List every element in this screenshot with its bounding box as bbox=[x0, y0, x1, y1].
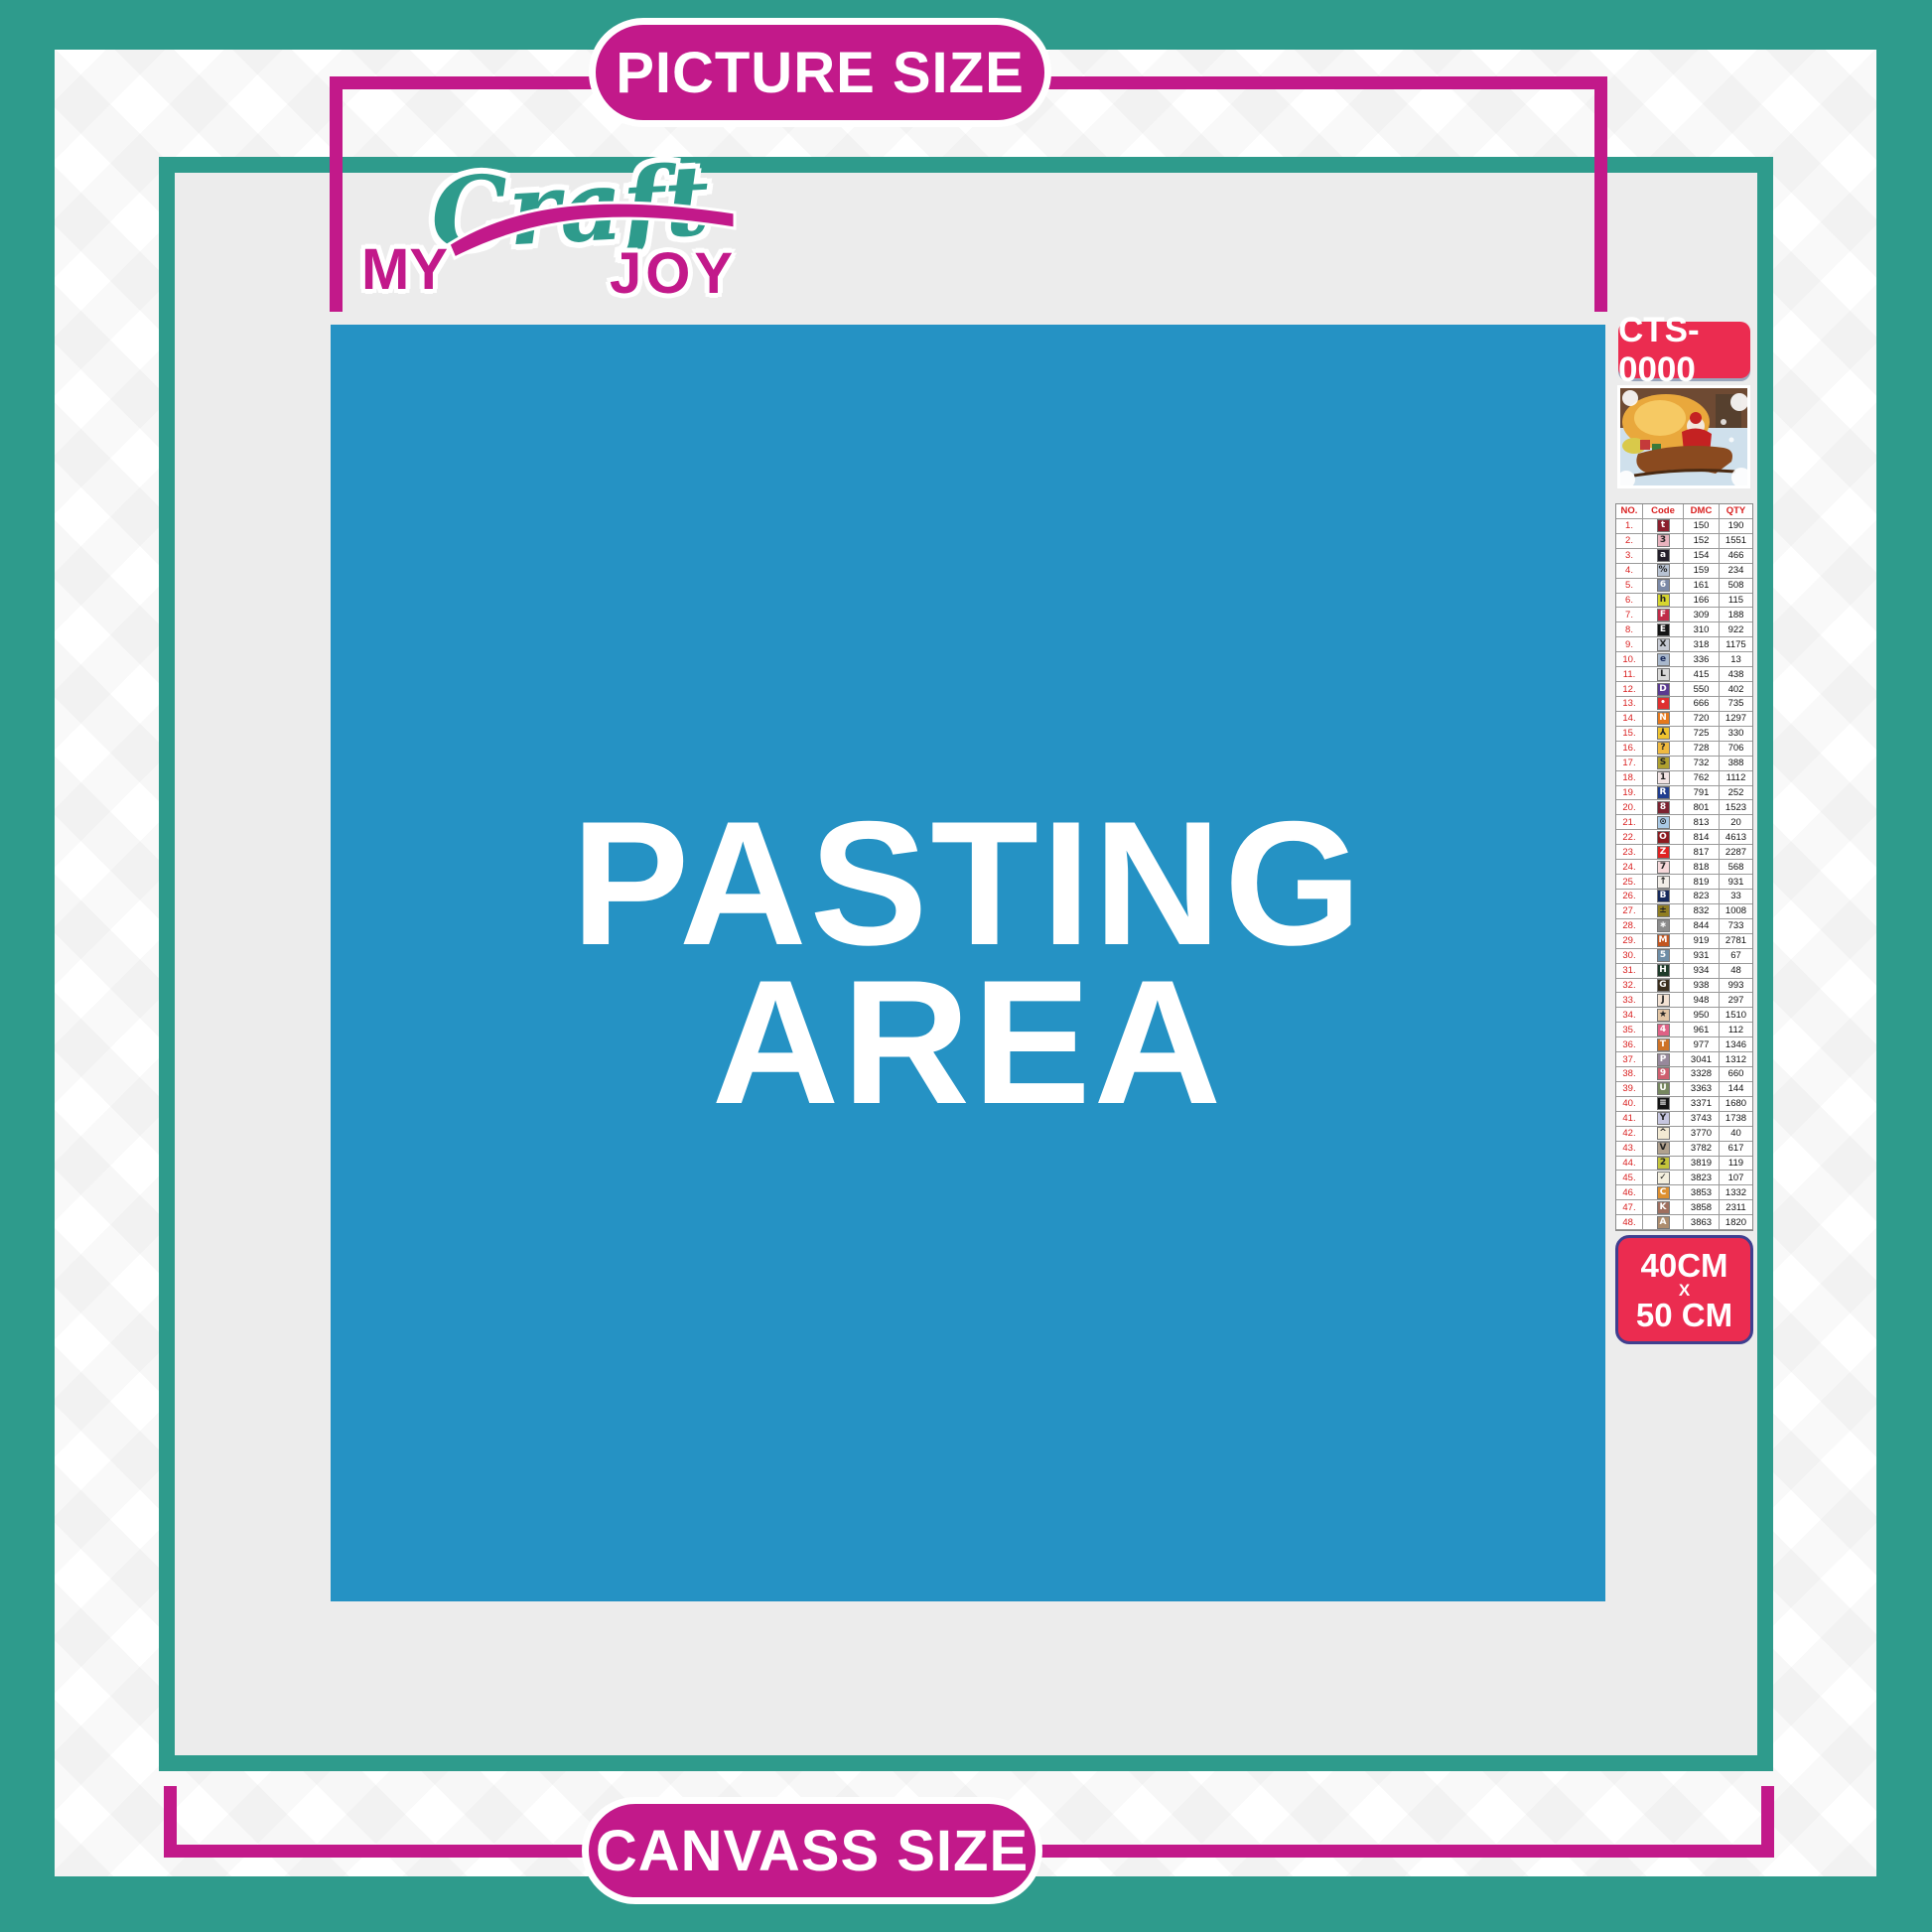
chart-cell-code: 9 bbox=[1643, 1067, 1684, 1082]
chart-cell-no: 33. bbox=[1616, 993, 1643, 1008]
chart-row: 13.•666735 bbox=[1616, 697, 1752, 712]
chart-cell-code: Y bbox=[1643, 1112, 1684, 1127]
chart-cell-qty: 48 bbox=[1720, 964, 1752, 979]
chart-row: 35.4961112 bbox=[1616, 1023, 1752, 1037]
color-symbol-chip: R bbox=[1657, 786, 1670, 799]
chart-row: 42.^377040 bbox=[1616, 1127, 1752, 1142]
chart-cell-qty: 1680 bbox=[1720, 1097, 1752, 1112]
chart-cell-no: 29. bbox=[1616, 934, 1643, 949]
chart-cell-qty: 20 bbox=[1720, 815, 1752, 830]
chart-cell-qty: 1312 bbox=[1720, 1052, 1752, 1067]
chart-cell-dmc: 801 bbox=[1684, 800, 1720, 815]
chart-cell-dmc: 3743 bbox=[1684, 1112, 1720, 1127]
chart-cell-dmc: 817 bbox=[1684, 845, 1720, 860]
chart-row: 14.N7201297 bbox=[1616, 712, 1752, 727]
chart-cell-code: H bbox=[1643, 964, 1684, 979]
color-symbol-chip: C bbox=[1657, 1186, 1670, 1199]
chart-row: 45.✓3823107 bbox=[1616, 1171, 1752, 1185]
chart-cell-qty: 508 bbox=[1720, 579, 1752, 594]
chart-cell-code: T bbox=[1643, 1037, 1684, 1052]
pasting-area-label-line2: AREA bbox=[712, 963, 1224, 1122]
chart-cell-no: 48. bbox=[1616, 1215, 1643, 1230]
chart-cell-no: 21. bbox=[1616, 815, 1643, 830]
chart-cell-qty: 2287 bbox=[1720, 845, 1752, 860]
chart-cell-dmc: 823 bbox=[1684, 890, 1720, 904]
chart-cell-no: 16. bbox=[1616, 742, 1643, 757]
chart-cell-no: 14. bbox=[1616, 712, 1643, 727]
picture-size-bracket-right-tick bbox=[1594, 76, 1607, 312]
canvas-size-banner: CANVASS SIZE bbox=[582, 1797, 1042, 1904]
chart-cell-qty: 1738 bbox=[1720, 1112, 1752, 1127]
chart-cell-no: 13. bbox=[1616, 697, 1643, 712]
chart-cell-dmc: 819 bbox=[1684, 875, 1720, 890]
chart-cell-dmc: 961 bbox=[1684, 1023, 1720, 1037]
chart-cell-qty: 1820 bbox=[1720, 1215, 1752, 1230]
pasting-area: PASTING AREA bbox=[331, 325, 1605, 1601]
chart-cell-qty: 112 bbox=[1720, 1023, 1752, 1037]
chart-row: 43.V3782617 bbox=[1616, 1142, 1752, 1157]
chart-row: 22.O8144613 bbox=[1616, 830, 1752, 845]
chart-cell-dmc: 948 bbox=[1684, 993, 1720, 1008]
chart-row: 29.M9192781 bbox=[1616, 934, 1752, 949]
chart-cell-code: X bbox=[1643, 637, 1684, 652]
chart-cell-code: S bbox=[1643, 757, 1684, 771]
chart-cell-code: ✓ bbox=[1643, 1171, 1684, 1185]
color-symbol-chip: Y bbox=[1657, 1112, 1670, 1125]
color-symbol-chip: V bbox=[1657, 1142, 1670, 1155]
chart-row: 10.e33613 bbox=[1616, 652, 1752, 667]
chart-cell-qty: 4613 bbox=[1720, 830, 1752, 845]
chart-row: 44.23819119 bbox=[1616, 1157, 1752, 1172]
chart-cell-code: h bbox=[1643, 594, 1684, 609]
chart-row: 27.±8321008 bbox=[1616, 904, 1752, 919]
chart-cell-code: E bbox=[1643, 622, 1684, 637]
chart-cell-dmc: 550 bbox=[1684, 682, 1720, 697]
chart-row: 5.6161508 bbox=[1616, 579, 1752, 594]
chart-row: 26.B82333 bbox=[1616, 890, 1752, 904]
chart-row: 37.P30411312 bbox=[1616, 1052, 1752, 1067]
chart-row: 18.17621112 bbox=[1616, 771, 1752, 786]
chart-cell-qty: 388 bbox=[1720, 757, 1752, 771]
color-symbol-chip: ⊙ bbox=[1657, 816, 1670, 829]
chart-cell-qty: 660 bbox=[1720, 1067, 1752, 1082]
chart-cell-dmc: 161 bbox=[1684, 579, 1720, 594]
chart-cell-dmc: 791 bbox=[1684, 786, 1720, 801]
chart-cell-code: % bbox=[1643, 564, 1684, 579]
color-symbol-chip: h bbox=[1657, 594, 1670, 607]
chart-cell-code: D bbox=[1643, 682, 1684, 697]
chart-cell-no: 25. bbox=[1616, 875, 1643, 890]
chart-cell-qty: 2311 bbox=[1720, 1200, 1752, 1215]
chart-row: 8.E310922 bbox=[1616, 622, 1752, 637]
chart-cell-code: R bbox=[1643, 786, 1684, 801]
brand-logo: Craft MY JOY bbox=[349, 171, 737, 305]
chart-cell-qty: 188 bbox=[1720, 608, 1752, 622]
chart-cell-dmc: 813 bbox=[1684, 815, 1720, 830]
chart-cell-no: 8. bbox=[1616, 622, 1643, 637]
chart-cell-code: ? bbox=[1643, 742, 1684, 757]
chart-cell-dmc: 3863 bbox=[1684, 1215, 1720, 1230]
chart-cell-no: 5. bbox=[1616, 579, 1643, 594]
chart-cell-code: U bbox=[1643, 1082, 1684, 1097]
chart-cell-dmc: 159 bbox=[1684, 564, 1720, 579]
chart-header-code: Code bbox=[1643, 504, 1684, 519]
color-symbol-chip: J bbox=[1657, 994, 1670, 1007]
chart-row: 20.88011523 bbox=[1616, 800, 1752, 815]
picture-size-banner: PICTURE SIZE bbox=[589, 18, 1051, 127]
chart-cell-dmc: 3858 bbox=[1684, 1200, 1720, 1215]
chart-cell-qty: 568 bbox=[1720, 860, 1752, 875]
chart-cell-code: V bbox=[1643, 1142, 1684, 1157]
color-symbol-chip: G bbox=[1657, 979, 1670, 992]
chart-row: 40.≡33711680 bbox=[1616, 1097, 1752, 1112]
color-symbol-chip: % bbox=[1657, 564, 1670, 577]
color-symbol-chip: 4 bbox=[1657, 1024, 1670, 1036]
color-symbol-chip: • bbox=[1657, 697, 1670, 710]
chart-cell-qty: 297 bbox=[1720, 993, 1752, 1008]
chart-cell-qty: 1175 bbox=[1720, 637, 1752, 652]
color-chart-rows: 1.t1501902.315215513.a1544664.%1592345.6… bbox=[1616, 519, 1752, 1230]
chart-header-dmc: DMC bbox=[1684, 504, 1720, 519]
product-infographic: PASTING AREA PICTURE SIZE CANVASS SIZE C… bbox=[0, 0, 1932, 1932]
chart-cell-qty: 735 bbox=[1720, 697, 1752, 712]
chart-cell-no: 38. bbox=[1616, 1067, 1643, 1082]
chart-cell-no: 20. bbox=[1616, 800, 1643, 815]
chart-cell-qty: 1332 bbox=[1720, 1185, 1752, 1200]
color-symbol-chip: N bbox=[1657, 712, 1670, 725]
chart-cell-code: ↑ bbox=[1643, 875, 1684, 890]
chart-cell-no: 3. bbox=[1616, 549, 1643, 564]
size-width-label: 40CM bbox=[1640, 1249, 1727, 1282]
chart-row: 2.31521551 bbox=[1616, 534, 1752, 549]
chart-header-qty: QTY bbox=[1720, 504, 1752, 519]
color-symbol-chip: K bbox=[1657, 1201, 1670, 1214]
color-symbol-chip: U bbox=[1657, 1082, 1670, 1095]
chart-cell-dmc: 318 bbox=[1684, 637, 1720, 652]
chart-cell-no: 11. bbox=[1616, 667, 1643, 682]
chart-cell-no: 7. bbox=[1616, 608, 1643, 622]
chart-row: 46.C38531332 bbox=[1616, 1185, 1752, 1200]
chart-cell-qty: 40 bbox=[1720, 1127, 1752, 1142]
color-symbol-chip: D bbox=[1657, 683, 1670, 696]
chart-cell-qty: 190 bbox=[1720, 519, 1752, 534]
chart-cell-no: 15. bbox=[1616, 727, 1643, 742]
chart-cell-dmc: 818 bbox=[1684, 860, 1720, 875]
color-symbol-chip: H bbox=[1657, 964, 1670, 977]
color-symbol-chip: P bbox=[1657, 1053, 1670, 1066]
chart-cell-code: • bbox=[1643, 697, 1684, 712]
chart-cell-code: A bbox=[1643, 1215, 1684, 1230]
color-symbol-chip: Z bbox=[1657, 846, 1670, 859]
chart-cell-qty: 1510 bbox=[1720, 1008, 1752, 1023]
color-symbol-chip: ↑ bbox=[1657, 876, 1670, 889]
chart-cell-no: 39. bbox=[1616, 1082, 1643, 1097]
chart-cell-no: 28. bbox=[1616, 919, 1643, 934]
color-symbol-chip: S bbox=[1657, 757, 1670, 769]
chart-cell-no: 1. bbox=[1616, 519, 1643, 534]
chart-cell-code: B bbox=[1643, 890, 1684, 904]
chart-cell-dmc: 415 bbox=[1684, 667, 1720, 682]
chart-cell-qty: 931 bbox=[1720, 875, 1752, 890]
chart-cell-code: 6 bbox=[1643, 579, 1684, 594]
size-separator-label: X bbox=[1679, 1282, 1690, 1299]
chart-cell-no: 30. bbox=[1616, 949, 1643, 964]
color-symbol-chip: ⅄ bbox=[1657, 727, 1670, 740]
chart-cell-dmc: 832 bbox=[1684, 904, 1720, 919]
color-symbol-chip: O bbox=[1657, 831, 1670, 844]
color-symbol-chip: ± bbox=[1657, 904, 1670, 917]
product-code-badge: CTS-0000 bbox=[1618, 322, 1750, 378]
chart-cell-no: 34. bbox=[1616, 1008, 1643, 1023]
chart-cell-qty: 402 bbox=[1720, 682, 1752, 697]
chart-row: 34.★9501510 bbox=[1616, 1008, 1752, 1023]
chart-cell-code: ≡ bbox=[1643, 1097, 1684, 1112]
chart-cell-dmc: 3041 bbox=[1684, 1052, 1720, 1067]
chart-cell-qty: 107 bbox=[1720, 1171, 1752, 1185]
chart-cell-qty: 706 bbox=[1720, 742, 1752, 757]
color-symbol-chip: 8 bbox=[1657, 801, 1670, 814]
chart-row: 36.T9771346 bbox=[1616, 1037, 1752, 1052]
chart-cell-dmc: 3782 bbox=[1684, 1142, 1720, 1157]
chart-cell-code: P bbox=[1643, 1052, 1684, 1067]
chart-cell-dmc: 762 bbox=[1684, 771, 1720, 786]
chart-cell-no: 19. bbox=[1616, 786, 1643, 801]
chart-cell-dmc: 3328 bbox=[1684, 1067, 1720, 1082]
chart-cell-code: C bbox=[1643, 1185, 1684, 1200]
chart-cell-qty: 67 bbox=[1720, 949, 1752, 964]
color-symbol-chip: 3 bbox=[1657, 534, 1670, 547]
chart-cell-code: t bbox=[1643, 519, 1684, 534]
color-symbol-chip: 7 bbox=[1657, 861, 1670, 874]
chart-row: 30.593167 bbox=[1616, 949, 1752, 964]
chart-cell-dmc: 3770 bbox=[1684, 1127, 1720, 1142]
santa-sleigh-image bbox=[1620, 388, 1747, 485]
chart-cell-qty: 144 bbox=[1720, 1082, 1752, 1097]
chart-cell-no: 23. bbox=[1616, 845, 1643, 860]
chart-row: 32.G938993 bbox=[1616, 979, 1752, 994]
chart-cell-code: G bbox=[1643, 979, 1684, 994]
chart-cell-qty: 13 bbox=[1720, 652, 1752, 667]
chart-cell-no: 6. bbox=[1616, 594, 1643, 609]
color-symbol-chip: 1 bbox=[1657, 771, 1670, 784]
chart-cell-code: 7 bbox=[1643, 860, 1684, 875]
chart-cell-no: 9. bbox=[1616, 637, 1643, 652]
chart-row: 39.U3363144 bbox=[1616, 1082, 1752, 1097]
chart-cell-dmc: 934 bbox=[1684, 964, 1720, 979]
chart-cell-no: 32. bbox=[1616, 979, 1643, 994]
color-symbol-chip: 6 bbox=[1657, 579, 1670, 592]
chart-row: 15.⅄725330 bbox=[1616, 727, 1752, 742]
chart-cell-dmc: 728 bbox=[1684, 742, 1720, 757]
color-symbol-chip: a bbox=[1657, 549, 1670, 562]
chart-cell-no: 4. bbox=[1616, 564, 1643, 579]
chart-cell-code: F bbox=[1643, 608, 1684, 622]
chart-cell-qty: 1297 bbox=[1720, 712, 1752, 727]
chart-row: 3.a154466 bbox=[1616, 549, 1752, 564]
color-symbol-chip: e bbox=[1657, 653, 1670, 666]
chart-cell-no: 43. bbox=[1616, 1142, 1643, 1157]
chart-cell-dmc: 150 bbox=[1684, 519, 1720, 534]
chart-cell-no: 17. bbox=[1616, 757, 1643, 771]
color-symbol-chip: ∗ bbox=[1657, 919, 1670, 932]
chart-row: 33.J948297 bbox=[1616, 993, 1752, 1008]
brand-logo-my-text: MY bbox=[361, 236, 448, 303]
chart-header-row: NO. Code DMC QTY bbox=[1616, 504, 1752, 519]
chart-cell-dmc: 154 bbox=[1684, 549, 1720, 564]
chart-cell-code: J bbox=[1643, 993, 1684, 1008]
chart-cell-qty: 922 bbox=[1720, 622, 1752, 637]
color-symbol-chip: B bbox=[1657, 890, 1670, 902]
chart-cell-dmc: 309 bbox=[1684, 608, 1720, 622]
chart-cell-qty: 33 bbox=[1720, 890, 1752, 904]
chart-cell-code: 2 bbox=[1643, 1157, 1684, 1172]
chart-cell-no: 27. bbox=[1616, 904, 1643, 919]
chart-cell-qty: 617 bbox=[1720, 1142, 1752, 1157]
chart-cell-code: M bbox=[1643, 934, 1684, 949]
chart-cell-dmc: 3819 bbox=[1684, 1157, 1720, 1172]
size-height-label: 50 CM bbox=[1636, 1299, 1732, 1331]
chart-row: 17.S732388 bbox=[1616, 757, 1752, 771]
chart-cell-qty: 1112 bbox=[1720, 771, 1752, 786]
chart-cell-no: 12. bbox=[1616, 682, 1643, 697]
chart-row: 11.L415438 bbox=[1616, 667, 1752, 682]
chart-row: 48.A38631820 bbox=[1616, 1215, 1752, 1230]
chart-cell-code: 8 bbox=[1643, 800, 1684, 815]
chart-cell-qty: 1346 bbox=[1720, 1037, 1752, 1052]
chart-row: 16.?728706 bbox=[1616, 742, 1752, 757]
chart-row: 41.Y37431738 bbox=[1616, 1112, 1752, 1127]
chart-cell-dmc: 3363 bbox=[1684, 1082, 1720, 1097]
chart-cell-code: K bbox=[1643, 1200, 1684, 1215]
canvas-size-bracket-right-tick bbox=[1761, 1786, 1774, 1858]
chart-cell-qty: 234 bbox=[1720, 564, 1752, 579]
chart-row: 21.⊙81320 bbox=[1616, 815, 1752, 830]
chart-row: 7.F309188 bbox=[1616, 608, 1752, 622]
color-symbol-chip: ? bbox=[1657, 742, 1670, 755]
color-symbol-chip: F bbox=[1657, 609, 1670, 621]
chart-cell-qty: 1523 bbox=[1720, 800, 1752, 815]
chart-cell-qty: 119 bbox=[1720, 1157, 1752, 1172]
chart-cell-dmc: 666 bbox=[1684, 697, 1720, 712]
chart-row: 28.∗844733 bbox=[1616, 919, 1752, 934]
chart-cell-qty: 2781 bbox=[1720, 934, 1752, 949]
chart-cell-dmc: 152 bbox=[1684, 534, 1720, 549]
chart-cell-dmc: 725 bbox=[1684, 727, 1720, 742]
chart-cell-dmc: 3853 bbox=[1684, 1185, 1720, 1200]
chart-cell-qty: 252 bbox=[1720, 786, 1752, 801]
color-symbol-chip: ^ bbox=[1657, 1127, 1670, 1140]
chart-row: 9.X3181175 bbox=[1616, 637, 1752, 652]
color-symbol-chip: ★ bbox=[1657, 1009, 1670, 1022]
canvas-size-bracket-left-tick bbox=[164, 1786, 177, 1858]
chart-cell-code: ⊙ bbox=[1643, 815, 1684, 830]
chart-cell-dmc: 336 bbox=[1684, 652, 1720, 667]
color-symbol-chip: 5 bbox=[1657, 949, 1670, 962]
chart-cell-code: Z bbox=[1643, 845, 1684, 860]
product-preview bbox=[1617, 385, 1750, 488]
chart-cell-qty: 993 bbox=[1720, 979, 1752, 994]
chart-cell-dmc: 814 bbox=[1684, 830, 1720, 845]
chart-cell-dmc: 950 bbox=[1684, 1008, 1720, 1023]
chart-cell-no: 35. bbox=[1616, 1023, 1643, 1037]
chart-cell-no: 31. bbox=[1616, 964, 1643, 979]
chart-cell-dmc: 720 bbox=[1684, 712, 1720, 727]
chart-cell-dmc: 938 bbox=[1684, 979, 1720, 994]
chart-cell-no: 26. bbox=[1616, 890, 1643, 904]
chart-cell-dmc: 310 bbox=[1684, 622, 1720, 637]
chart-cell-dmc: 919 bbox=[1684, 934, 1720, 949]
color-symbol-chip: t bbox=[1657, 519, 1670, 532]
color-symbol-chip: T bbox=[1657, 1038, 1670, 1051]
chart-cell-qty: 115 bbox=[1720, 594, 1752, 609]
canvas-size-badge: 40CM X 50 CM bbox=[1615, 1235, 1753, 1344]
chart-cell-code: 1 bbox=[1643, 771, 1684, 786]
chart-row: 23.Z8172287 bbox=[1616, 845, 1752, 860]
chart-cell-no: 37. bbox=[1616, 1052, 1643, 1067]
chart-cell-no: 45. bbox=[1616, 1171, 1643, 1185]
chart-cell-dmc: 3371 bbox=[1684, 1097, 1720, 1112]
chart-cell-code: L bbox=[1643, 667, 1684, 682]
chart-cell-dmc: 732 bbox=[1684, 757, 1720, 771]
chart-cell-code: a bbox=[1643, 549, 1684, 564]
chart-cell-code: N bbox=[1643, 712, 1684, 727]
chart-cell-no: 40. bbox=[1616, 1097, 1643, 1112]
chart-cell-code: 5 bbox=[1643, 949, 1684, 964]
chart-cell-no: 24. bbox=[1616, 860, 1643, 875]
brand-logo-joy-text: JOY bbox=[610, 240, 737, 307]
chart-row: 25.↑819931 bbox=[1616, 875, 1752, 890]
color-symbol-chip: 2 bbox=[1657, 1157, 1670, 1170]
chart-cell-no: 22. bbox=[1616, 830, 1643, 845]
chart-cell-code: e bbox=[1643, 652, 1684, 667]
color-symbol-chip: ✓ bbox=[1657, 1172, 1670, 1184]
chart-header-no: NO. bbox=[1616, 504, 1643, 519]
color-symbol-chip: E bbox=[1657, 623, 1670, 636]
chart-cell-no: 46. bbox=[1616, 1185, 1643, 1200]
color-symbol-chip: ≡ bbox=[1657, 1097, 1670, 1110]
chart-row: 24.7818568 bbox=[1616, 860, 1752, 875]
chart-cell-no: 18. bbox=[1616, 771, 1643, 786]
chart-cell-code: ⅄ bbox=[1643, 727, 1684, 742]
chart-cell-dmc: 977 bbox=[1684, 1037, 1720, 1052]
chart-cell-no: 42. bbox=[1616, 1127, 1643, 1142]
chart-cell-qty: 466 bbox=[1720, 549, 1752, 564]
chart-cell-code: ★ bbox=[1643, 1008, 1684, 1023]
color-symbol-chip: X bbox=[1657, 638, 1670, 651]
color-chart: NO. Code DMC QTY 1.t1501902.315215513.a1… bbox=[1615, 503, 1753, 1231]
chart-cell-qty: 438 bbox=[1720, 667, 1752, 682]
chart-cell-qty: 733 bbox=[1720, 919, 1752, 934]
color-symbol-chip: M bbox=[1657, 934, 1670, 947]
chart-row: 1.t150190 bbox=[1616, 519, 1752, 534]
chart-cell-no: 2. bbox=[1616, 534, 1643, 549]
chart-cell-no: 47. bbox=[1616, 1200, 1643, 1215]
chart-row: 38.93328660 bbox=[1616, 1067, 1752, 1082]
chart-cell-code: ± bbox=[1643, 904, 1684, 919]
color-symbol-chip: A bbox=[1657, 1216, 1670, 1229]
chart-cell-code: ^ bbox=[1643, 1127, 1684, 1142]
picture-size-bracket-left-tick bbox=[330, 76, 343, 312]
chart-row: 12.D550402 bbox=[1616, 682, 1752, 697]
chart-cell-qty: 1008 bbox=[1720, 904, 1752, 919]
chart-cell-code: 4 bbox=[1643, 1023, 1684, 1037]
chart-row: 19.R791252 bbox=[1616, 786, 1752, 801]
chart-row: 6.h166115 bbox=[1616, 594, 1752, 609]
chart-cell-code: 3 bbox=[1643, 534, 1684, 549]
chart-row: 47.K38582311 bbox=[1616, 1200, 1752, 1215]
chart-row: 31.H93448 bbox=[1616, 964, 1752, 979]
chart-cell-no: 10. bbox=[1616, 652, 1643, 667]
